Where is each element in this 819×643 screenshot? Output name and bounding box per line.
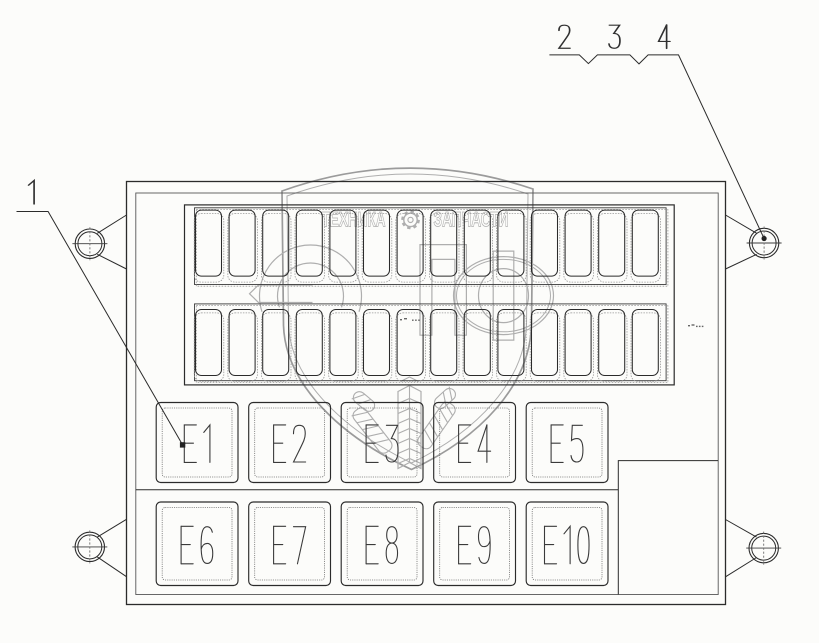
svg-text:ЗАПЧАСТИ: ЗАПЧАСТИ	[434, 209, 509, 232]
